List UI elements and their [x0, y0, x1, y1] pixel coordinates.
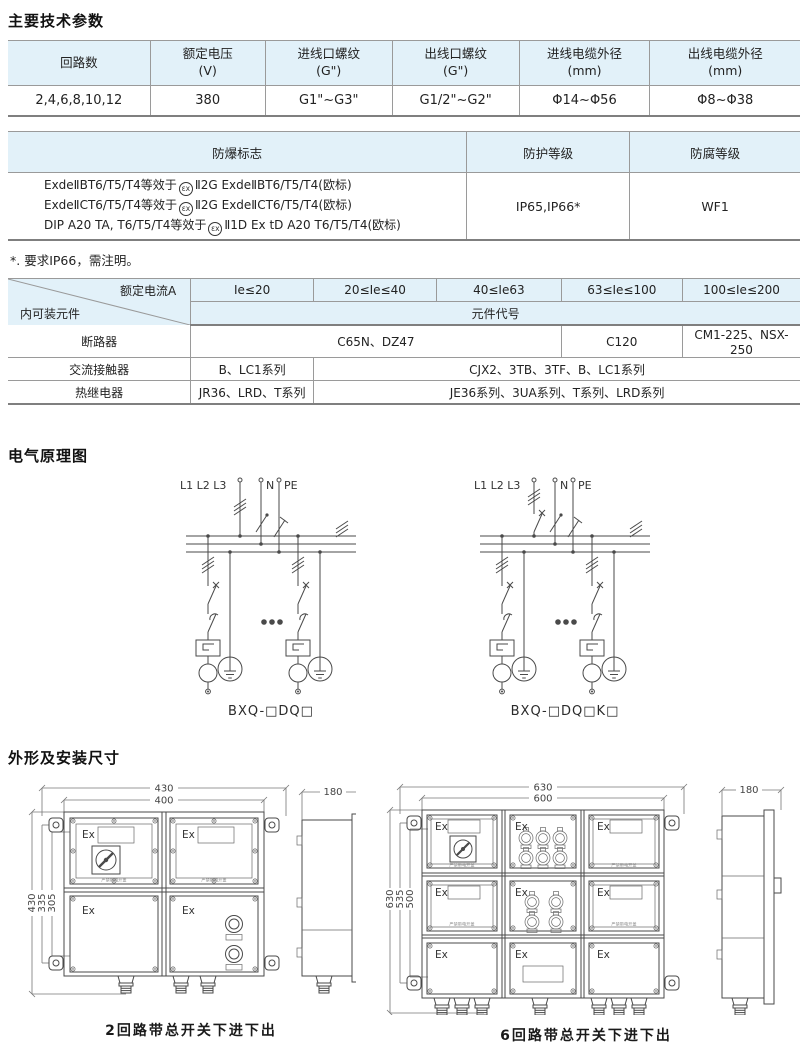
ex-marking-label: Ex — [82, 905, 95, 917]
warning-plate: 严禁带电开盖 — [611, 862, 636, 869]
components-table: 额定电流A 内可装元件 Ie≤20 20≤Ie≤40 40≤Ie63 63≤Ie… — [8, 278, 800, 405]
explosion-mark-data-row: ExdeⅡBT6/T5/T4等效于εxⅡ2G ExdeⅡBT6/T5/T4(欧标… — [8, 173, 800, 241]
mark3-post: Ⅱ1D Ex tD A20 T6/T5/T4(欧标) — [224, 218, 401, 232]
ip66-footnote: *. 要求IP66，需注明。 — [10, 250, 800, 269]
row-label-thermal-relay: 热继电器 — [8, 381, 191, 405]
col-header-ip-rating: 防护等级 — [467, 132, 630, 173]
pe-label: PE — [578, 479, 592, 492]
dim-width-outer: 630 — [533, 783, 552, 794]
mark1-pre: ExdeⅡBT6/T5/T4等效于 — [44, 178, 177, 192]
busbars — [186, 521, 356, 554]
ex-mark-line-2: ExdeⅡCT6/T5/T4等效于εxⅡ2G ExdeⅡCT6/T5/T4(欧标… — [44, 196, 466, 216]
params-table-header-row: 回路数 额定电压 (V) 进线口螺纹 (G") 出线口螺纹 (G") 进线电缆外… — [8, 41, 800, 86]
row-label-contactor: 交流接触器 — [8, 358, 191, 381]
dim-lines-left — [387, 807, 484, 1015]
cell-inlet-cable: Φ14~Φ56 — [519, 86, 650, 117]
components-header-row-1: 额定电流A 内可装元件 Ie≤20 20≤Ie≤40 40≤Ie63 63≤Ie… — [8, 279, 800, 302]
cell-voltage: 380 — [150, 86, 265, 117]
cell-outlet-cable: Φ8~Φ38 — [650, 86, 800, 117]
mark2-post: Ⅱ2G ExdeⅡCT6/T5/T4(欧标) — [195, 198, 352, 212]
schematic-diagram-2: L1 L2 L3 N PE — [470, 474, 660, 698]
dimension-drawings: 430 400 430 335 305 — [26, 780, 800, 1045]
drawing-6-circuit: 630 600 630 535 500 — [384, 780, 788, 1045]
section-title-dimensions: 外形及安装尺寸 — [8, 747, 800, 768]
ex-mark-line-1: ExdeⅡBT6/T5/T4等效于εxⅡ2G ExdeⅡBT6/T5/T4(欧标… — [44, 176, 466, 196]
contactor-row: 交流接触器 B、LC1系列 CJX2、3TB、3TF、B、LC1系列 — [8, 358, 800, 381]
dim-height-inner: 305 — [47, 893, 58, 912]
relay-models-2: JE36系列、3UA系列、T系列、LRD系列 — [314, 381, 800, 405]
dim-width-inner: 400 — [154, 796, 173, 807]
contactor-models-2: CJX2、3TB、3TF、B、LC1系列 — [314, 358, 800, 381]
ellipsis-dots — [555, 619, 577, 625]
atex-symbol: εx — [179, 182, 193, 196]
neutral-label: N — [266, 479, 274, 492]
cell-outlet-thread: G1/2"~G2" — [392, 86, 519, 117]
dim-width-inner: 600 — [533, 794, 552, 805]
breaker-models-3: CM1-225、NSX-250 — [682, 325, 800, 358]
corner-label-current: 额定电流A — [120, 282, 176, 299]
row-label-breaker: 断路器 — [8, 325, 191, 358]
params-table-data-row: 2,4,6,8,10,12 380 G1"~G3" G1/2"~G2" Φ14~… — [8, 86, 800, 117]
cell-circuits: 2,4,6,8,10,12 — [8, 86, 150, 117]
ex-marking-label: Ex — [435, 887, 448, 899]
side-view-enclosure — [717, 810, 781, 1015]
schematic-without-main-switch: L1 L2 L3 N PE — [176, 474, 366, 719]
schematic-caption-2: BXQ-□DQ□K□ — [470, 704, 660, 719]
schematic-with-main-switch: L1 L2 L3 N PE — [470, 474, 660, 719]
ex-marking-label: Ex — [515, 887, 528, 899]
ex-marking-label: Ex — [82, 829, 95, 841]
col-header-inlet-cable: 进线电缆外径 (mm) — [519, 41, 650, 86]
drawing-caption-2-circuit: 2回路带总开关下进下出 — [26, 1020, 356, 1040]
ellipsis-dots — [261, 619, 283, 625]
col-header-inlet-thread: 进线口螺纹 (G") — [265, 41, 392, 86]
breaker-models-2: C120 — [561, 325, 682, 358]
cell-ex-markings: ExdeⅡBT6/T5/T4等效于εxⅡ2G ExdeⅡBT6/T5/T4(欧标… — [8, 173, 467, 241]
drawing-6-circuit-svg: 630 600 630 535 500 — [384, 780, 788, 1015]
feeder-branch-1 — [196, 534, 220, 694]
current-range-3: 40≤Ie63 — [437, 279, 562, 302]
col-header-ex-marking: 防爆标志 — [8, 132, 467, 173]
diagonal-corner-cell: 额定电流A 内可装元件 — [8, 279, 191, 326]
relay-models-1: JR36、LRD、T系列 — [191, 381, 314, 405]
ex-marking-label: Ex — [182, 905, 195, 917]
current-range-5: 100≤Ie≤200 — [682, 279, 800, 302]
cell-inlet-thread: G1"~G3" — [265, 86, 392, 117]
breaker-models-1: C65N、DZ47 — [191, 325, 561, 358]
catalog-page: 主要技术参数 回路数 额定电压 (V) 进线口螺纹 (G") 出线口螺纹 (G"… — [0, 0, 800, 1045]
warning-plate: 严禁带电开盖 — [201, 877, 226, 884]
atex-symbol: εx — [179, 202, 193, 216]
neutral-label: N — [560, 479, 568, 492]
explosion-mark-header-row: 防爆标志 防护等级 防腐等级 — [8, 132, 800, 173]
dim-depth: 180 — [739, 785, 758, 796]
mark2-pre: ExdeⅡCT6/T5/T4等效于 — [44, 198, 177, 212]
feeder-branch-2 — [580, 534, 604, 694]
thermal-relay-row: 热继电器 JR36、LRD、T系列 JE36系列、3UA系列、T系列、LRD系列 — [8, 381, 800, 405]
pe-drop-1 — [512, 550, 536, 681]
side-view-enclosure — [297, 814, 356, 993]
section-title-schematic: 电气原理图 — [8, 445, 800, 466]
current-range-4: 63≤Ie≤100 — [561, 279, 682, 302]
ex-marking-label: Ex — [515, 949, 528, 961]
drawing-caption-6-circuit: 6回路带总开关下进下出 — [384, 1025, 788, 1045]
schematic-diagram-1: L1 L2 L3 N PE — [176, 474, 366, 698]
ex-marking-label: Ex — [597, 949, 610, 961]
ex-marking-label: Ex — [182, 829, 195, 841]
mark1-post: Ⅱ2G ExdeⅡBT6/T5/T4(欧标) — [195, 178, 352, 192]
explosion-mark-table: 防爆标志 防护等级 防腐等级 ExdeⅡBT6/T5/T4等效于εxⅡ2G Ex… — [8, 131, 800, 241]
drawing-2-circuit-svg: 430 400 430 335 305 — [26, 780, 356, 1010]
cell-anticorrosion: WF1 — [630, 173, 800, 241]
col-header-outlet-cable: 出线电缆外径 (mm) — [650, 41, 800, 86]
ex-marking-label: Ex — [435, 821, 448, 833]
pe-label: PE — [284, 479, 298, 492]
phase-labels: L1 L2 L3 — [180, 479, 226, 492]
incoming-lines — [234, 478, 288, 552]
front-view-enclosure — [407, 810, 679, 1015]
current-range-2: 20≤Ie≤40 — [314, 279, 437, 302]
phase-labels: L1 L2 L3 — [474, 479, 520, 492]
pe-drop-2 — [602, 550, 626, 681]
corner-label-components: 内可装元件 — [20, 305, 80, 322]
cell-ip-rating: IP65,IP66* — [467, 173, 630, 241]
ex-marking-label: Ex — [515, 821, 528, 833]
incoming-lines — [528, 478, 582, 552]
dim-width-outer: 430 — [154, 784, 173, 795]
warning-plate: 严禁带电开盖 — [449, 921, 474, 928]
pe-drop-2 — [308, 550, 332, 681]
col-header-circuits: 回路数 — [8, 41, 150, 86]
schematic-caption-1: BXQ-□DQ□ — [176, 704, 366, 719]
schematic-figures: L1 L2 L3 N PE — [176, 474, 800, 719]
warning-plate: 严禁带电开盖 — [101, 877, 126, 884]
ex-marking-label: Ex — [435, 949, 448, 961]
current-range-1: Ie≤20 — [191, 279, 314, 302]
atex-symbol: εx — [208, 222, 222, 236]
section-title-parameters: 主要技术参数 — [8, 10, 800, 31]
params-table: 回路数 额定电压 (V) 进线口螺纹 (G") 出线口螺纹 (G") 进线电缆外… — [8, 40, 800, 117]
warning-plate: 严禁带电开盖 — [449, 862, 474, 869]
col-header-anticorrosion: 防腐等级 — [630, 132, 800, 173]
feeder-branch-2 — [286, 534, 310, 694]
pe-drop-1 — [218, 550, 242, 681]
warning-plate: 严禁带电开盖 — [611, 921, 636, 928]
dim-height-inner: 500 — [405, 889, 416, 908]
drawing-2-circuit: 430 400 430 335 305 — [26, 780, 356, 1040]
contactor-models-1: B、LC1系列 — [191, 358, 314, 381]
breaker-row: 断路器 C65N、DZ47 C120 CM1-225、NSX-250 — [8, 325, 800, 358]
col-header-voltage: 额定电压 (V) — [150, 41, 265, 86]
ex-mark-line-3: DIP A20 TA, T6/T5/T4等效于εxⅡ1D Ex tD A20 T… — [44, 216, 466, 236]
mark3-pre: DIP A20 TA, T6/T5/T4等效于 — [44, 218, 206, 232]
ex-marking-label: Ex — [597, 887, 610, 899]
col-header-outlet-thread: 出线口螺纹 (G") — [392, 41, 519, 86]
feeder-branch-1 — [490, 534, 514, 694]
ex-marking-label: Ex — [597, 821, 610, 833]
dim-depth: 180 — [323, 787, 342, 798]
component-code-header: 元件代号 — [191, 302, 800, 326]
busbars — [480, 521, 650, 554]
